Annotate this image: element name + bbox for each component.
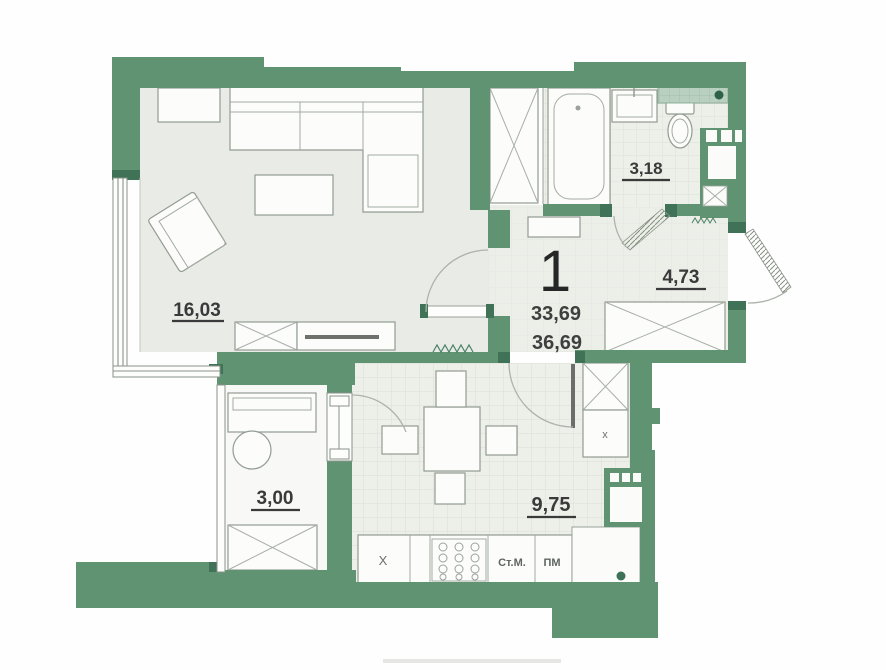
coffee-table <box>255 175 333 215</box>
chair-left <box>382 426 418 454</box>
living-door-leaf <box>426 306 488 317</box>
washing-machine-label: Ст.М. <box>498 557 526 569</box>
living-area-value: 33,69 <box>531 303 581 325</box>
balcony-table <box>233 431 271 469</box>
entrance-door-leaf <box>745 229 791 293</box>
hall-shelf <box>528 217 580 237</box>
balcony-label: 3,00 <box>257 488 294 509</box>
kitchen-door-leaf <box>571 364 575 428</box>
toilet-tank <box>666 102 694 114</box>
total-area-value: 36,69 <box>532 332 582 354</box>
chair-top <box>436 371 466 407</box>
unit-number: 1 <box>539 239 571 304</box>
kitchen-label: 9,75 <box>532 494 571 516</box>
pipe-dot <box>617 572 626 581</box>
tv <box>305 335 379 339</box>
dishwasher-label: ПМ <box>543 557 560 569</box>
kitchen-counter <box>358 535 572 583</box>
entrance-door-swing <box>748 291 787 303</box>
bathroom-label: 3,18 <box>629 159 662 178</box>
hallway-label: 4,73 <box>663 267 700 288</box>
cabinet-mark: x <box>602 429 608 441</box>
floor-plan-drawing: 16,03 3,18 4,73 3,00 9,75 1 33,69 36,69 … <box>0 0 886 670</box>
sink-mark: X <box>379 553 388 568</box>
chair-right <box>486 426 517 455</box>
counter-sink-dot <box>715 91 724 100</box>
bathtub-drain <box>576 106 581 111</box>
balcony-glazing <box>217 385 225 572</box>
bathtub <box>548 88 610 205</box>
living-window <box>113 178 127 368</box>
floor-plan-page: 16,03 3,18 4,73 3,00 9,75 1 33,69 36,69 … <box>0 0 886 670</box>
chair-bottom <box>435 473 465 504</box>
living-room-label: 16,03 <box>173 300 221 321</box>
cabinet <box>158 88 220 122</box>
counter-right <box>572 527 640 583</box>
dining-table <box>424 407 480 471</box>
balcony-bench <box>228 393 316 432</box>
scan-artifact <box>383 659 561 663</box>
